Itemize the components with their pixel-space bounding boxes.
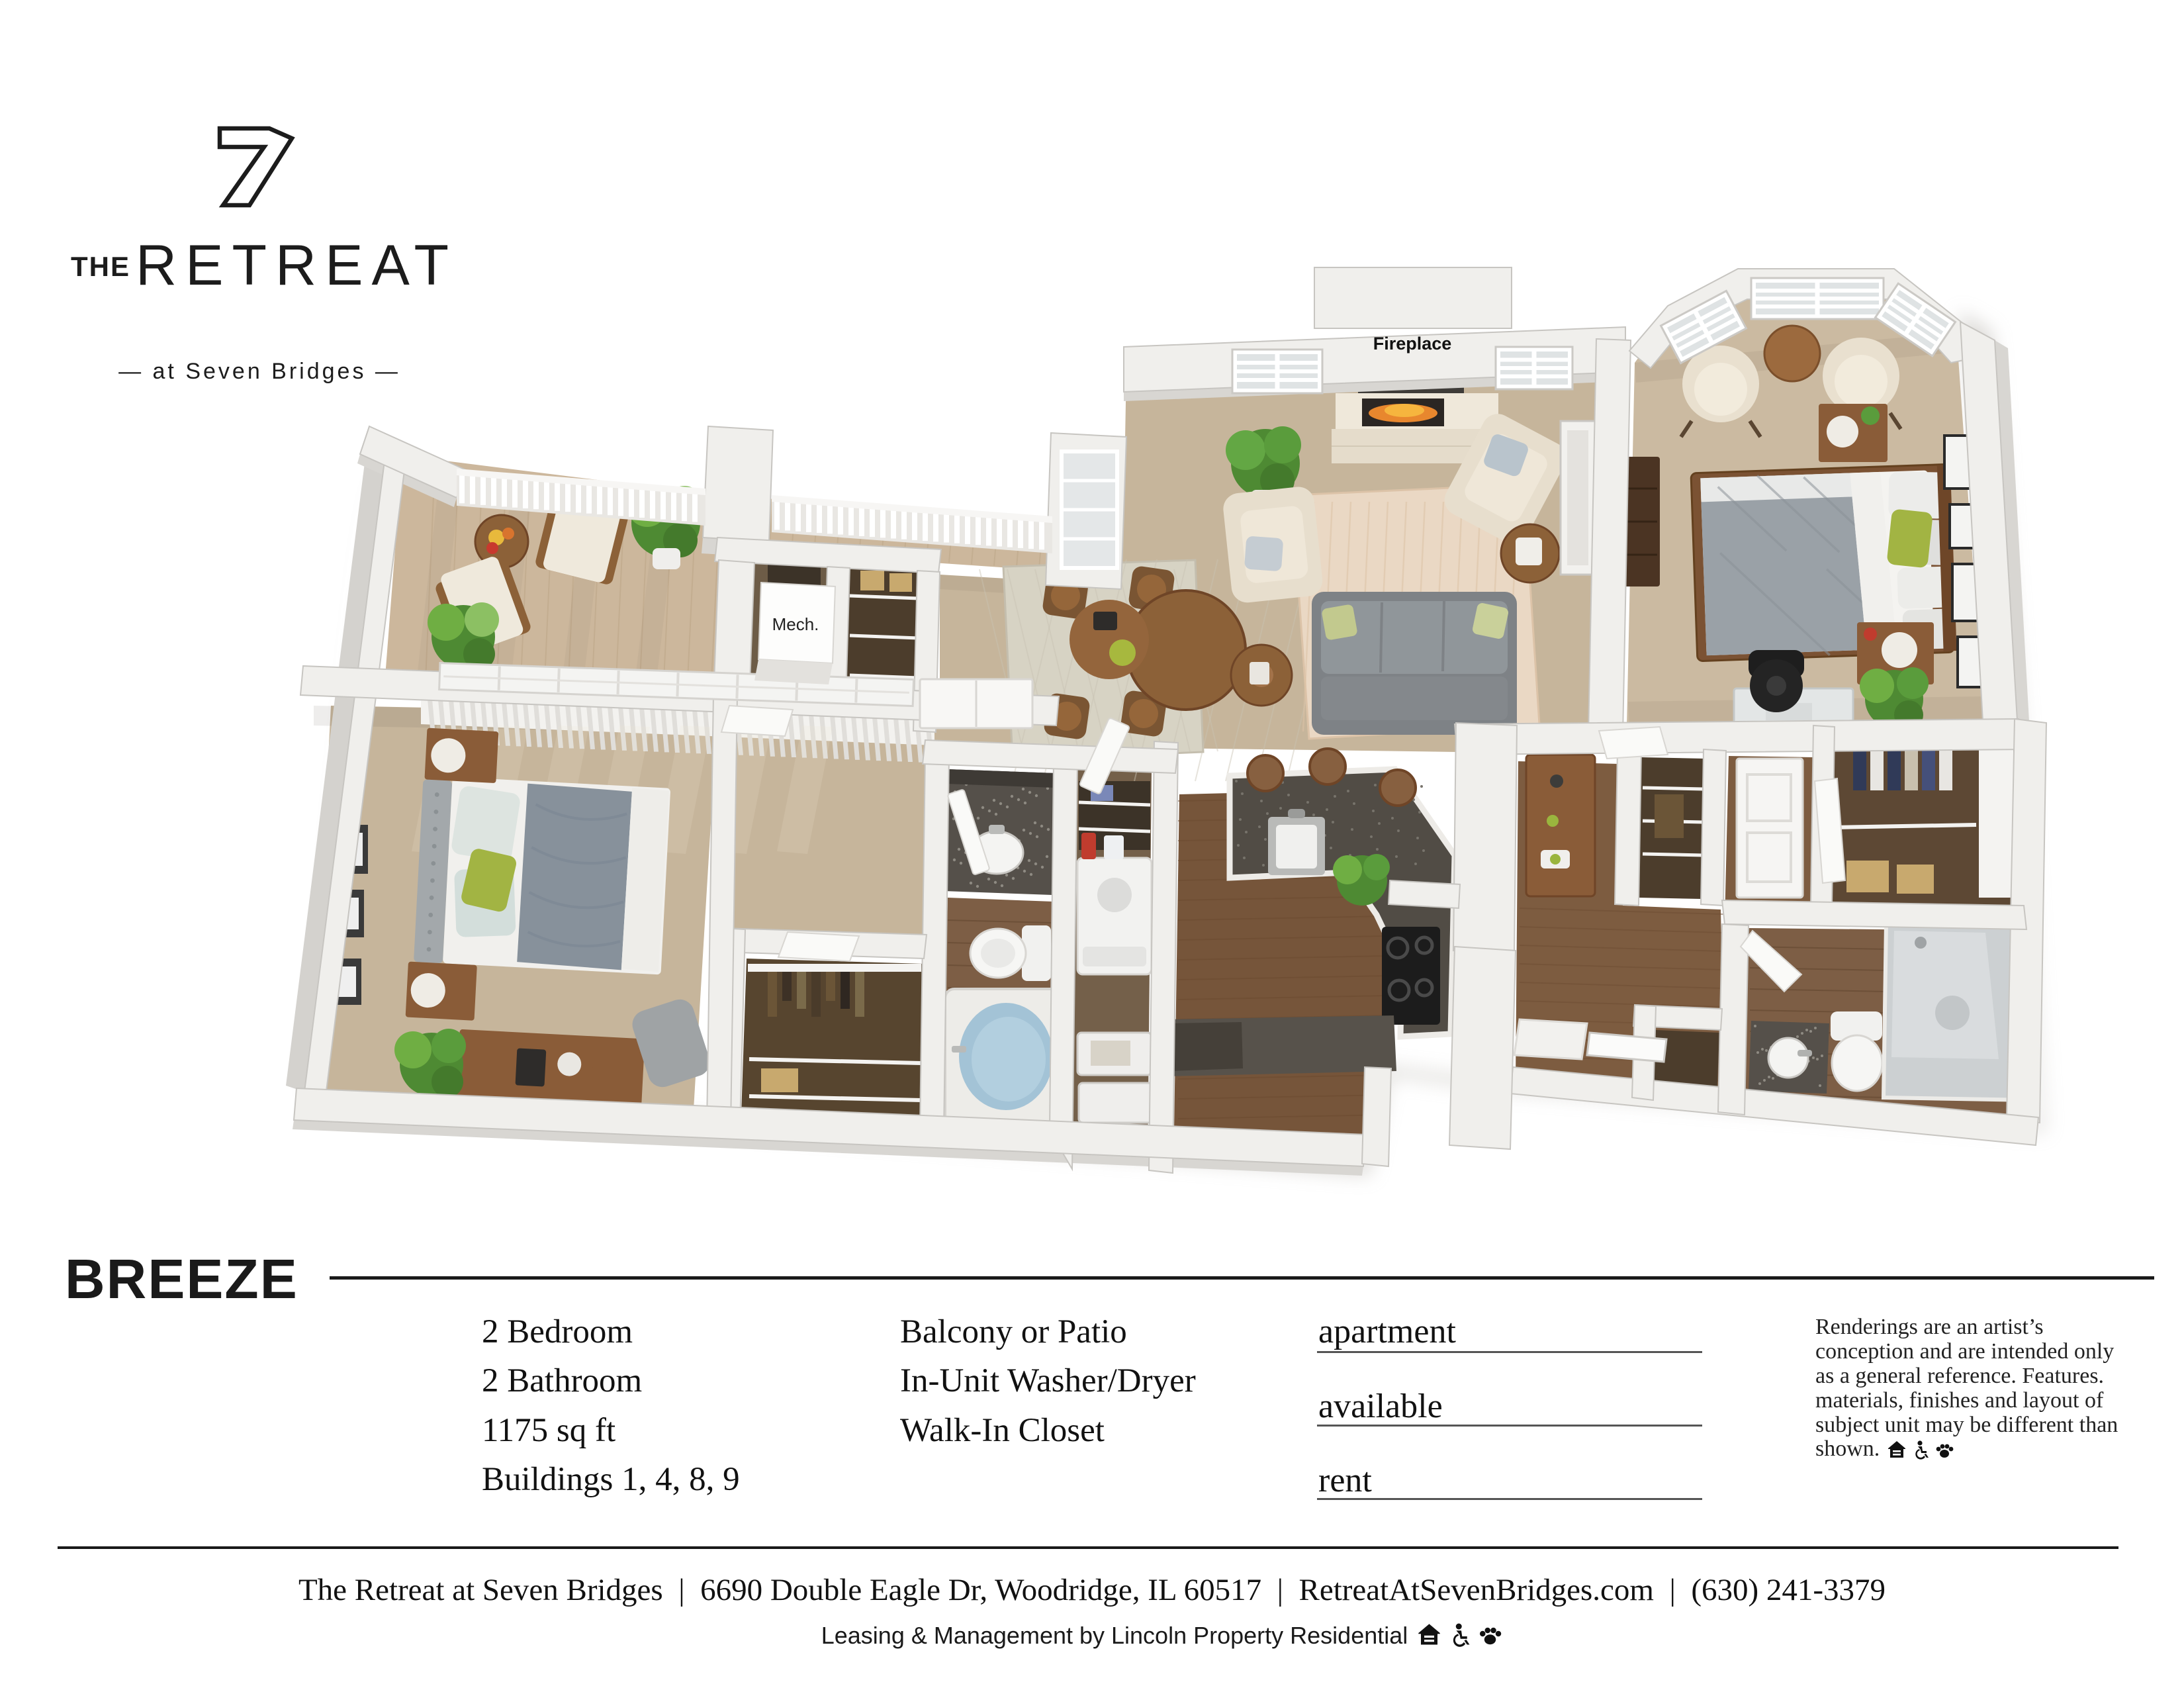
svg-text:Leasing & Management by Lincol: Leasing & Management by Lincoln Property… (821, 1622, 1408, 1649)
svg-text:2 Bathroom: 2 Bathroom (482, 1362, 642, 1399)
svg-text:apartment: apartment (1318, 1313, 1456, 1350)
svg-text:Mech.: Mech. (772, 614, 819, 634)
svg-text:In-Unit Washer/Dryer: In-Unit Washer/Dryer (900, 1362, 1196, 1399)
svg-text:rent: rent (1318, 1462, 1372, 1499)
svg-text:Fireplace: Fireplace (1373, 334, 1452, 353)
svg-text:Walk-In Closet: Walk-In Closet (900, 1412, 1105, 1449)
svg-text:— at Seven Bridges —: — at Seven Bridges — (118, 359, 400, 384)
svg-text:conception and are intended on: conception and are intended only (1815, 1339, 2114, 1364)
svg-text:THE: THE (71, 251, 130, 282)
svg-text:The Retreat at Seven Bridges: The Retreat at Seven Bridges | 6690 Doub… (298, 1573, 1886, 1607)
svg-text:subject unit may be different: subject unit may be different than (1815, 1413, 2118, 1437)
svg-text:Balcony or Patio: Balcony or Patio (900, 1313, 1127, 1350)
svg-text:shown.: shown. (1815, 1436, 1880, 1461)
svg-text:Buildings 1, 4, 8, 9: Buildings 1, 4, 8, 9 (482, 1461, 740, 1498)
svg-text:available: available (1318, 1387, 1443, 1425)
svg-text:Renderings are an artist’s: Renderings are an artist’s (1815, 1315, 2044, 1339)
svg-text:2 Bedroom: 2 Bedroom (482, 1313, 633, 1350)
svg-text:materials, finishes and layout: materials, finishes and layout of (1815, 1388, 2104, 1413)
svg-text:as a general reference. Featur: as a general reference. Features. (1815, 1364, 2104, 1388)
svg-text:BREEZE: BREEZE (65, 1248, 298, 1310)
svg-text:RETREAT: RETREAT (136, 234, 457, 297)
svg-text:1175 sq ft: 1175 sq ft (482, 1412, 615, 1449)
